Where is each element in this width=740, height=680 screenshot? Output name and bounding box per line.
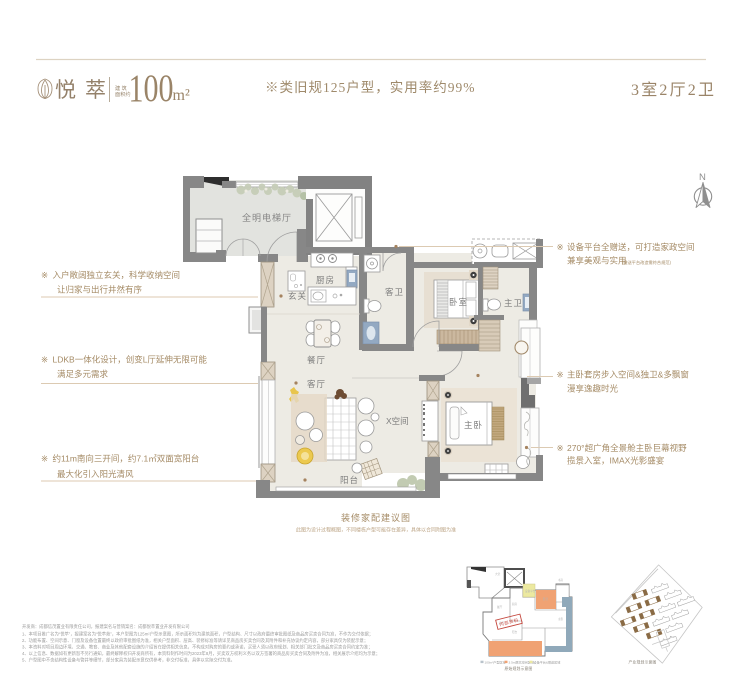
svg-text:3室2厅2卫: 3室2厅2卫 (631, 81, 716, 99)
svg-text:100: 100 (129, 66, 174, 110)
svg-text:※类旧规125户型，实用率约99%: ※类旧规125户型，实用率约99% (265, 79, 476, 95)
svg-text:餐厅: 餐厅 (307, 355, 326, 365)
svg-text:LDKB一体化设计，创变L厅延伸无限可能: LDKB一体化设计，创变L厅延伸无限可能 (53, 355, 208, 365)
svg-text:厨房: 厨房 (512, 602, 518, 606)
svg-text:漫享逸趣时光: 漫享逸趣时光 (567, 384, 619, 394)
svg-text:主卧: 主卧 (558, 617, 564, 621)
svg-text:5、户型图中不含结构性设备与管井等细节，部分家具为装配示意仅: 5、户型图中不含结构性设备与管井等细节，部分家具为装配示意仅供参考，非交付标准，… (22, 657, 235, 664)
svg-text:卧室: 卧室 (543, 597, 549, 601)
svg-text:100m²户型区域: 100m²户型区域 (485, 659, 506, 664)
svg-text:※: ※ (557, 443, 564, 453)
svg-text:N: N (699, 172, 706, 183)
svg-text:2、功能布置、空间示意、门窗及设备位置最终以政府审批图纸为准: 2、功能布置、空间示意、门窗及设备位置最终以政府审批图纸为准，相关户型面积、层高… (22, 637, 368, 644)
svg-text:玄关: 玄关 (288, 291, 307, 301)
svg-text:主卫: 主卫 (504, 298, 523, 308)
svg-text:此图为设计过程概图，不同楼栋户型可能存在差异，具体以合同附图: 此图为设计过程概图，不同楼栋户型可能存在差异，具体以合同附图为准 (296, 527, 456, 534)
svg-text:主卧套房步入空间&独卫&多飘窗: 主卧套房步入空间&独卫&多飘窗 (567, 370, 689, 380)
svg-text:设备平台&赠送区域: 设备平台&赠送区域 (534, 659, 561, 664)
svg-text:(赠送平台改造需符合规范): (赠送平台改造需符合规范) (622, 259, 671, 266)
svg-text:厨房: 厨房 (316, 275, 335, 285)
svg-text:客卫: 客卫 (385, 287, 404, 297)
svg-text:阳台: 阳台 (340, 475, 359, 485)
svg-text:满足多元需求: 满足多元需求 (57, 369, 109, 379)
svg-text:270°超广角全景舱主卧巨幕视野: 270°超广角全景舱主卧巨幕视野 (567, 443, 687, 453)
svg-text:客厅: 客厅 (307, 379, 326, 389)
svg-text:最大化引入阳光清风: 最大化引入阳光清风 (57, 469, 134, 479)
svg-text:1、本项目推广名为“悦萃”，报建案名为“悦萃苑”，本户型图为: 1、本项目推广名为“悦萃”，报建案名为“悦萃苑”，本户型图为125m²户型示意图… (22, 631, 373, 638)
svg-text:入户敞阔独立玄关，科学收纳空间: 入户敞阔独立玄关，科学收纳空间 (53, 270, 181, 280)
svg-text:※: ※ (41, 355, 48, 365)
svg-text:※: ※ (41, 454, 48, 464)
svg-text:※: ※ (557, 242, 564, 252)
svg-text:X空间: X空间 (386, 416, 409, 426)
svg-text:兼享美观与实用: 兼享美观与实用 (567, 256, 627, 266)
svg-text:开发商：成都信茂置业有限责任公司，报建案名与营销案名：成都悦: 开发商：成都信茂置业有限责任公司，报建案名与营销案名：成都悦萃置业开发有限公司 (22, 623, 190, 630)
svg-text:※: ※ (41, 270, 48, 280)
svg-text:※: ※ (557, 370, 564, 380)
svg-text:阳台: 阳台 (512, 630, 518, 634)
svg-text:原始规划示意图: 原始规划示意图 (505, 666, 533, 671)
svg-text:4、以上信息、数据如有更新恕不另行通知，最终解释权归开发商所: 4、以上信息、数据如有更新恕不另行通知，最终解释权归开发商所有，本资料制作时间为… (22, 650, 380, 657)
svg-text:设备平台全赠送，可打造家政空间: 设备平台全赠送，可打造家政空间 (567, 242, 695, 252)
svg-text:产业规划示意图: 产业规划示意图 (629, 660, 657, 665)
svg-text:约11m南向三开间，约7.1㎡双面宽阳台: 约11m南向三开间，约7.1㎡双面宽阳台 (53, 454, 200, 464)
svg-text:主卧: 主卧 (464, 420, 483, 430)
svg-text:让归家与出行井然有序: 让归家与出行井然有序 (57, 285, 143, 295)
svg-text:m²: m² (173, 87, 190, 104)
svg-text:建 筑: 建 筑 (115, 84, 128, 92)
svg-text:3、本资料对项目周边环境、交通、教育、商业及其他配套设施的介: 3、本资料对项目周边环境、交通、教育、商业及其他配套设施的介绍旨在提供相关信息，… (22, 644, 372, 651)
svg-text:全明电梯厅: 全明电梯厅 (242, 212, 292, 223)
svg-text:餐厅: 餐厅 (497, 605, 503, 609)
svg-text:揽景入室，IMAX光影盛宴: 揽景入室，IMAX光影盛宴 (567, 456, 664, 466)
svg-text:卧室: 卧室 (449, 297, 468, 307)
svg-text:书房: 书房 (558, 578, 564, 582)
svg-text:装修家配建议图: 装修家配建议图 (341, 512, 411, 523)
svg-text:设备平台: 设备平台 (525, 589, 536, 593)
svg-text:悦萃: 悦萃 (55, 78, 115, 102)
svg-text:大堂: 大堂 (495, 572, 501, 576)
